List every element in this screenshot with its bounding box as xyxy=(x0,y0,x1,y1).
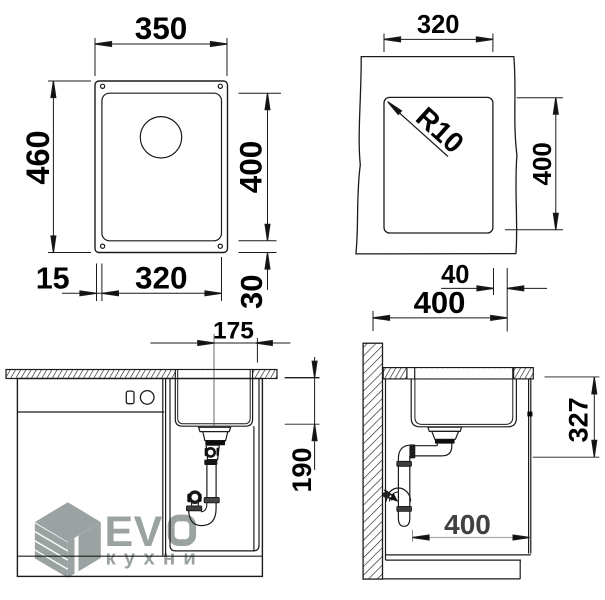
svg-text:30: 30 xyxy=(234,275,269,309)
svg-text:460: 460 xyxy=(20,130,56,184)
svg-text:400: 400 xyxy=(527,142,557,185)
svg-text:кухни: кухни xyxy=(106,547,204,570)
svg-text:190: 190 xyxy=(287,447,317,492)
svg-text:320: 320 xyxy=(417,11,460,39)
svg-text:327: 327 xyxy=(564,397,594,442)
svg-text:400: 400 xyxy=(444,509,491,540)
svg-text:175: 175 xyxy=(213,317,254,344)
svg-text:350: 350 xyxy=(135,10,188,46)
svg-text:320: 320 xyxy=(135,260,188,296)
svg-text:400: 400 xyxy=(414,285,466,320)
svg-text:15: 15 xyxy=(36,262,70,296)
svg-text:400: 400 xyxy=(233,141,269,194)
